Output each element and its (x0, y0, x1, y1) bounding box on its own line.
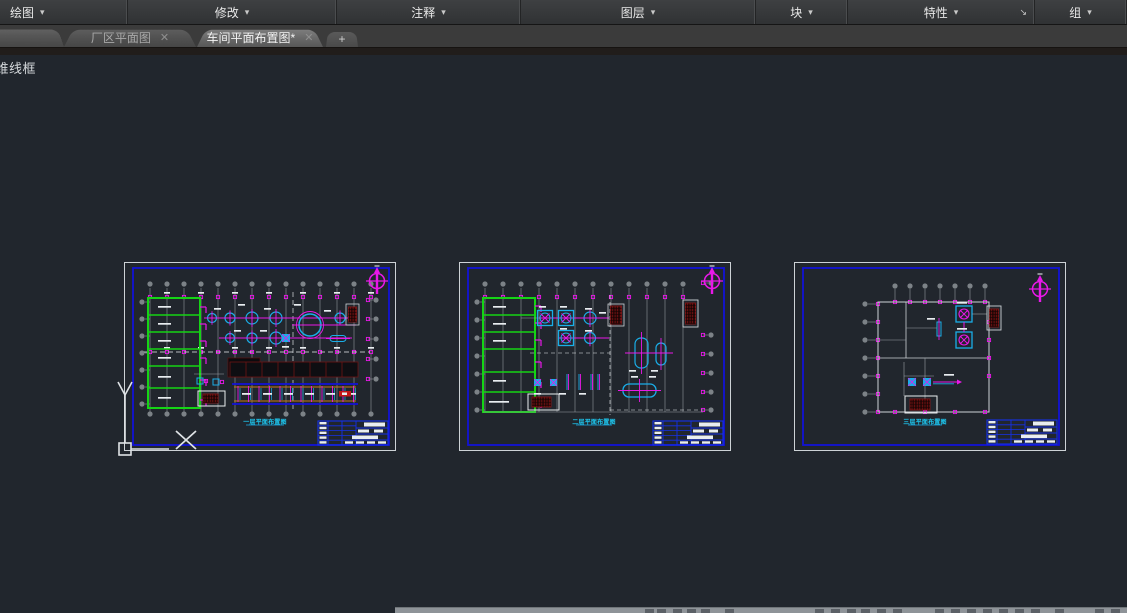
chevron-down-icon: ▾ (245, 7, 250, 18)
close-icon[interactable]: ✕ (160, 31, 169, 44)
chevron-down-icon: ▾ (1087, 7, 1092, 18)
ribbon-panel-draw-label: 绘图 (10, 4, 34, 21)
sheet-title: 一层平面布置图 (243, 418, 286, 426)
tab-factory-plan[interactable]: 厂区平面图 ✕ (64, 27, 196, 47)
chevron-down-icon: ▾ (40, 7, 45, 18)
ribbon-panel-group[interactable]: 组 ▾ (1035, 0, 1127, 24)
visual-style-label[interactable]: 二维线框 (0, 58, 36, 77)
ribbon-panel-annotate-label: 注释 (411, 4, 435, 21)
tab-partial-left[interactable] (0, 27, 64, 47)
ribbon-panel-properties-label: 特性 (924, 4, 948, 21)
tab-workshop-layout[interactable]: 车间平面布置图* ✕ (197, 27, 323, 47)
ribbon-bar: 绘图 ▾ 修改 ▾ 注释 ▾ 图层 ▾ 块 ▾ 特性 ▾ ↘ 组 ▾ (0, 0, 1127, 25)
status-bar-sliver[interactable] (395, 607, 1127, 613)
sheet-title: 二层平面布置图 (572, 418, 615, 426)
drawing-tab-bar: 厂区平面图 ✕ 车间平面布置图* ✕ + (0, 25, 1127, 47)
chevron-down-icon: ▾ (441, 7, 446, 18)
model-space-canvas[interactable]: 二维线框 一层平面布置图 二层平面布置图 三层平面布置图 (0, 55, 1127, 613)
panel-dialog-launcher-icon[interactable]: ↘ (1019, 8, 1027, 17)
tab-workshop-layout-label: 车间平面布置图* (207, 29, 296, 46)
chevron-down-icon: ▾ (808, 7, 813, 18)
ribbon-panel-layers[interactable]: 图层 ▾ (521, 0, 756, 24)
ribbon-panel-modify[interactable]: 修改 ▾ (128, 0, 337, 24)
new-drawing-tab-button[interactable]: + (326, 30, 358, 47)
ribbon-panel-annotate[interactable]: 注释 ▾ (337, 0, 521, 24)
ribbon-panel-group-label: 组 (1069, 4, 1081, 21)
drawing-sheet-floor2: 二层平面布置图 (459, 262, 731, 452)
cad-application-window: 绘图 ▾ 修改 ▾ 注释 ▾ 图层 ▾ 块 ▾ 特性 ▾ ↘ 组 ▾ (0, 0, 1127, 613)
plus-icon: + (338, 32, 345, 46)
ribbon-panel-modify-label: 修改 (215, 4, 239, 21)
chevron-down-icon: ▾ (651, 7, 656, 18)
ribbon-panel-block-label: 块 (790, 4, 802, 21)
drawing-sheet-floor3: 三层平面布置图 (794, 262, 1066, 452)
sheet-title: 三层平面布置图 (903, 418, 946, 426)
tabbar-lower-strip (0, 47, 1127, 55)
ribbon-panel-properties[interactable]: 特性 ▾ ↘ (848, 0, 1035, 24)
ribbon-panel-block[interactable]: 块 ▾ (756, 0, 848, 24)
close-icon[interactable]: ✕ (304, 31, 313, 44)
ribbon-panel-layers-label: 图层 (621, 4, 645, 21)
chevron-down-icon: ▾ (954, 7, 959, 18)
ucs-icon (105, 373, 215, 463)
tab-factory-plan-label: 厂区平面图 (91, 29, 151, 46)
ribbon-panel-draw[interactable]: 绘图 ▾ (0, 0, 128, 24)
